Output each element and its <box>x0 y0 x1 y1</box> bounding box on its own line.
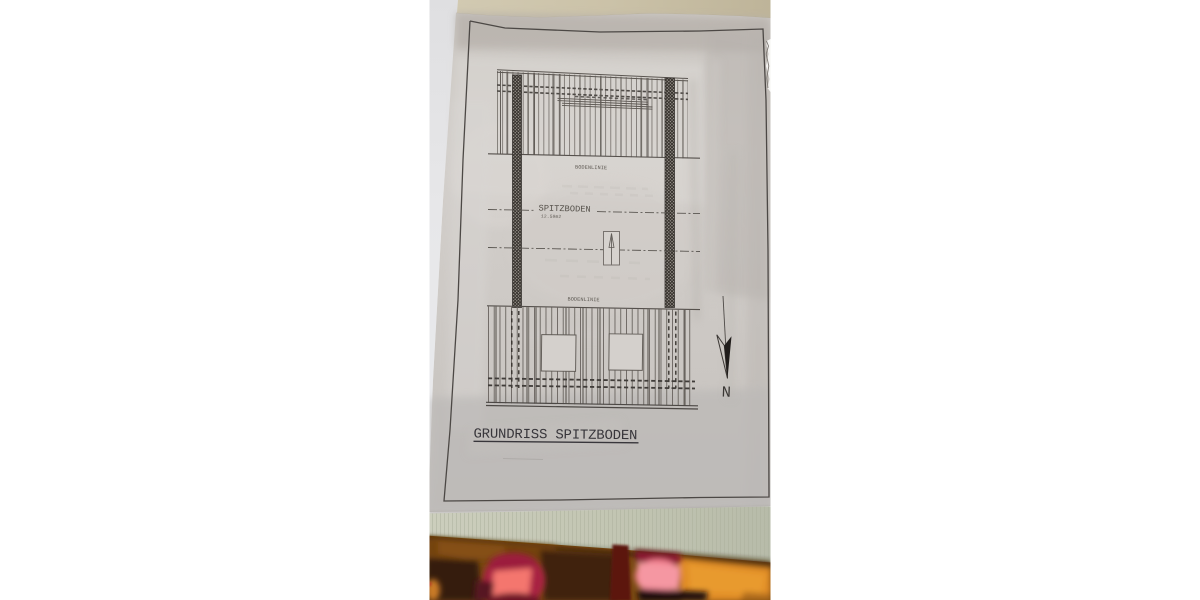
svg-text:BODENLINIE: BODENLINIE <box>567 297 599 304</box>
svg-text:BODENLINIE: BODENLINIE <box>575 165 607 172</box>
svg-text:SPITZBODEN: SPITZBODEN <box>538 204 590 215</box>
svg-text:N: N <box>721 384 731 402</box>
svg-text:12.59m2: 12.59m2 <box>541 214 562 220</box>
